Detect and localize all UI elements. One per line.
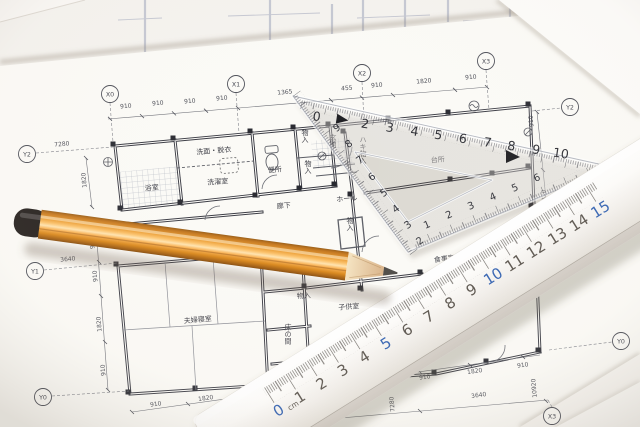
vignette — [0, 0, 640, 427]
photo-stage: X0 X1 X2 X3 Y2 Y1 Y0 Y2 Y0 X3 910 910 91… — [0, 0, 640, 427]
blueprint-photo: X0 X1 X2 X3 Y2 Y1 Y0 Y2 Y0 X3 910 910 91… — [0, 0, 640, 427]
